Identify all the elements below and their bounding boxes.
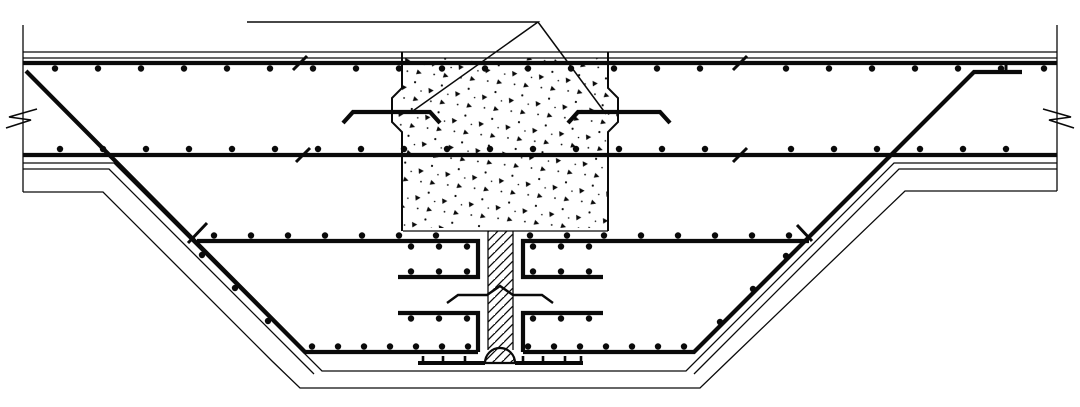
joint-detail-drawing <box>0 0 1080 407</box>
blueprint-figure <box>0 0 1080 407</box>
bottom-bar-dots <box>57 146 1009 152</box>
